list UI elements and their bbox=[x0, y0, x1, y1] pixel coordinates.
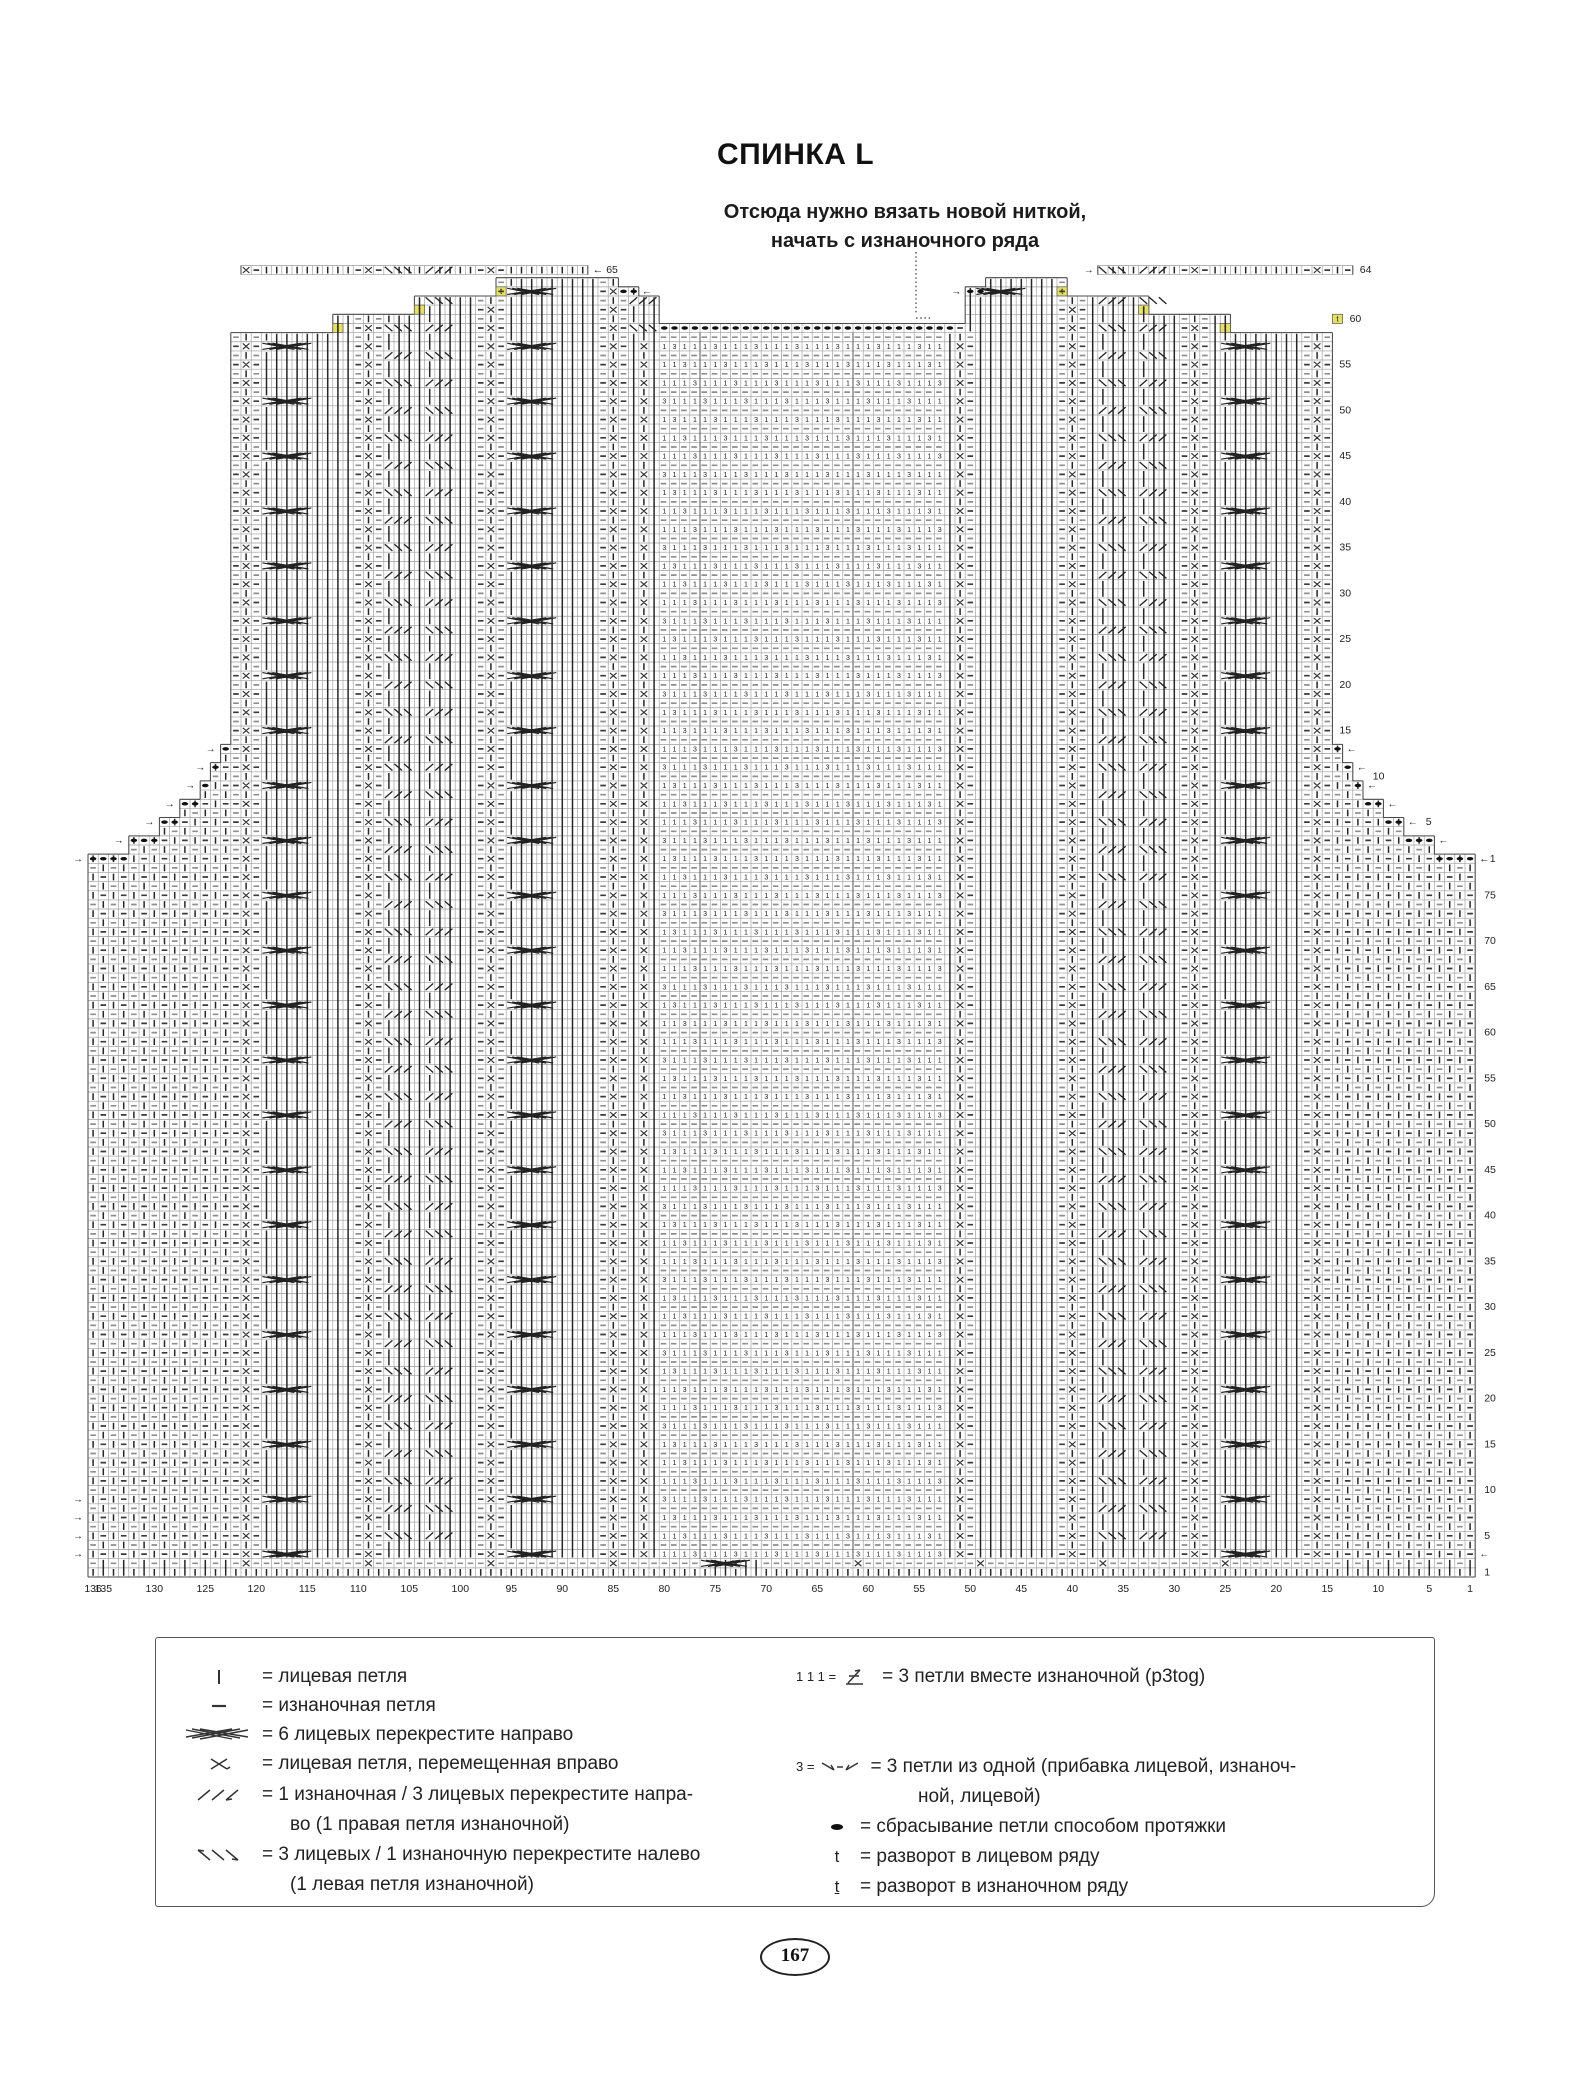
page-number: 167 bbox=[781, 1945, 810, 1966]
svg-text:70: 70 bbox=[1484, 935, 1496, 947]
svg-text:→: → bbox=[195, 762, 205, 773]
svg-text:→: → bbox=[114, 836, 124, 847]
svg-text:←: ← bbox=[1479, 1549, 1489, 1560]
legend-item-cross3-right: = 1 изнаночная / 3 лицевых перекрестите … bbox=[184, 1784, 693, 1806]
svg-text:64: 64 bbox=[1360, 264, 1372, 276]
knit-stitch-icon bbox=[184, 1667, 254, 1687]
svg-text:105: 105 bbox=[401, 1583, 419, 1595]
svg-text:65: 65 bbox=[811, 1583, 823, 1595]
svg-text:35: 35 bbox=[1117, 1583, 1129, 1595]
svg-text:135: 135 bbox=[95, 1583, 113, 1595]
svg-text:20: 20 bbox=[1270, 1583, 1282, 1595]
svg-text:→: → bbox=[951, 287, 961, 298]
page-title: СПИНКА L bbox=[0, 138, 1591, 172]
turn-ws-icon: t bbox=[822, 1876, 852, 1898]
svg-text:115: 115 bbox=[299, 1583, 316, 1595]
svg-text:35: 35 bbox=[1339, 542, 1351, 554]
svg-text:25: 25 bbox=[1219, 1583, 1231, 1595]
svg-text:←: ← bbox=[1387, 799, 1397, 810]
svg-text:40: 40 bbox=[1339, 496, 1351, 508]
svg-text:125: 125 bbox=[197, 1583, 215, 1595]
svg-text:5: 5 bbox=[1484, 1530, 1490, 1542]
svg-text:→: → bbox=[144, 817, 154, 828]
make-3-from-1-icon bbox=[818, 1757, 862, 1777]
svg-text:100: 100 bbox=[452, 1583, 470, 1595]
new-thread-leader bbox=[916, 252, 932, 318]
cross-3-left-icon bbox=[184, 1845, 254, 1865]
annotation-line-1: Отсюда нужно вязать новой ниткой, bbox=[724, 198, 1086, 227]
svg-text:75: 75 bbox=[709, 1583, 721, 1595]
svg-text:←: ← bbox=[1408, 817, 1418, 828]
svg-text:45: 45 bbox=[1015, 1583, 1027, 1595]
svg-text:50: 50 bbox=[964, 1583, 976, 1595]
svg-text:95: 95 bbox=[505, 1583, 517, 1595]
svg-text:120: 120 bbox=[248, 1583, 266, 1595]
svg-text:75: 75 bbox=[1484, 889, 1496, 901]
svg-text:60: 60 bbox=[1484, 1027, 1496, 1039]
svg-text:45: 45 bbox=[1339, 450, 1351, 462]
legend-item-p3tog: 1 1 1 = = 3 петли вместе изнаночной (p3t… bbox=[796, 1666, 1205, 1688]
svg-text:←: ← bbox=[1347, 744, 1357, 755]
svg-text:15: 15 bbox=[1339, 725, 1351, 737]
svg-text:55: 55 bbox=[1339, 359, 1351, 371]
svg-text:130: 130 bbox=[146, 1583, 164, 1595]
svg-text:40: 40 bbox=[1484, 1210, 1496, 1222]
legend-item-moved-right: = лицевая петля, перемещенная вправо bbox=[184, 1753, 618, 1775]
legend-item-cable6: = 6 лицевых перекрестите направо bbox=[184, 1724, 573, 1746]
annotation-line-2: начать с изнаночного ряда bbox=[724, 227, 1086, 256]
svg-text:45: 45 bbox=[1484, 1164, 1496, 1176]
p3tog-icon bbox=[840, 1667, 874, 1687]
knit-moved-right-icon bbox=[184, 1754, 254, 1774]
svg-text:40: 40 bbox=[1066, 1583, 1078, 1595]
legend-item-purl: = изнаночная петля bbox=[184, 1695, 436, 1717]
turn-rs-icon: t bbox=[822, 1846, 852, 1868]
svg-text:→: → bbox=[185, 781, 195, 792]
pattern-page: СПИНКА L Отсюда нужно вязать новой нитко… bbox=[0, 0, 1591, 2087]
svg-text:→: → bbox=[73, 854, 83, 865]
svg-text:30: 30 bbox=[1168, 1583, 1180, 1595]
svg-text:80: 80 bbox=[658, 1583, 670, 1595]
legend-box: = лицевая петля = изнаночная петля = 6 л… bbox=[155, 1637, 1435, 1907]
svg-text:90: 90 bbox=[556, 1583, 568, 1595]
svg-text:85: 85 bbox=[607, 1583, 619, 1595]
svg-text:15: 15 bbox=[1484, 1438, 1496, 1450]
svg-text:→: → bbox=[73, 1549, 83, 1560]
cross-3-right-icon bbox=[184, 1785, 254, 1805]
svg-text:30: 30 bbox=[1484, 1301, 1496, 1313]
svg-text:20: 20 bbox=[1339, 679, 1351, 691]
svg-text:10: 10 bbox=[1372, 1583, 1384, 1595]
legend-item-knit: = лицевая петля bbox=[184, 1666, 407, 1688]
svg-text:25: 25 bbox=[1339, 633, 1351, 645]
svg-text:5: 5 bbox=[1426, 816, 1432, 828]
legend-item-turn-rs: t= разворот в лицевом ряду bbox=[822, 1846, 1099, 1868]
chart-grid bbox=[88, 266, 1475, 1578]
svg-text:→: → bbox=[1084, 265, 1094, 276]
svg-text:30: 30 bbox=[1339, 587, 1351, 599]
svg-text:→: → bbox=[73, 1513, 83, 1524]
purl-stitch-icon bbox=[184, 1696, 254, 1716]
svg-text:←1: ←1 bbox=[1479, 853, 1496, 865]
svg-text:35: 35 bbox=[1484, 1255, 1496, 1267]
chart-annotation: Отсюда нужно вязать новой ниткой, начать… bbox=[724, 198, 1086, 256]
svg-text:15: 15 bbox=[1321, 1583, 1333, 1595]
svg-text:←: ← bbox=[1438, 836, 1448, 847]
legend-item-cross3-left: = 3 лицевых / 1 изнаночную перекрестите … bbox=[184, 1844, 700, 1866]
legend-item-turn-ws: t= разворот в изнаночном ряду bbox=[822, 1876, 1128, 1898]
svg-text:110: 110 bbox=[350, 1583, 367, 1595]
svg-text:← 65: ← 65 bbox=[593, 264, 618, 276]
svg-text:←: ← bbox=[1357, 762, 1367, 773]
svg-text:60: 60 bbox=[1350, 313, 1362, 325]
legend-item-make3: 3 = = 3 петли из одной (прибавка лицевой… bbox=[796, 1756, 1296, 1778]
svg-text:→: → bbox=[73, 1531, 83, 1542]
drop-stitch-icon bbox=[822, 1817, 852, 1837]
page-number-badge: 167 bbox=[760, 1938, 830, 1976]
svg-text:1: 1 bbox=[1467, 1583, 1473, 1595]
svg-text:5: 5 bbox=[1426, 1583, 1432, 1595]
svg-text:25: 25 bbox=[1484, 1347, 1496, 1359]
svg-text:55: 55 bbox=[913, 1583, 925, 1595]
svg-text:→: → bbox=[934, 323, 944, 334]
svg-text:→: → bbox=[165, 799, 175, 810]
svg-text:65: 65 bbox=[1484, 981, 1496, 993]
legend-item-drop: = сбрасывание петли способом протяжки bbox=[822, 1816, 1226, 1838]
svg-text:→: → bbox=[73, 1494, 83, 1505]
svg-text:10: 10 bbox=[1484, 1484, 1496, 1496]
svg-text:10: 10 bbox=[1373, 770, 1385, 782]
svg-text:←: ← bbox=[642, 287, 652, 298]
svg-text:70: 70 bbox=[760, 1583, 772, 1595]
svg-text:1: 1 bbox=[1484, 1566, 1490, 1578]
svg-text:55: 55 bbox=[1484, 1072, 1496, 1084]
svg-text:60: 60 bbox=[862, 1583, 874, 1595]
svg-text:50: 50 bbox=[1339, 404, 1351, 416]
cable-6-right-icon bbox=[184, 1725, 254, 1745]
svg-text:→: → bbox=[206, 744, 216, 755]
svg-text:50: 50 bbox=[1484, 1118, 1496, 1130]
svg-text:20: 20 bbox=[1484, 1393, 1496, 1405]
